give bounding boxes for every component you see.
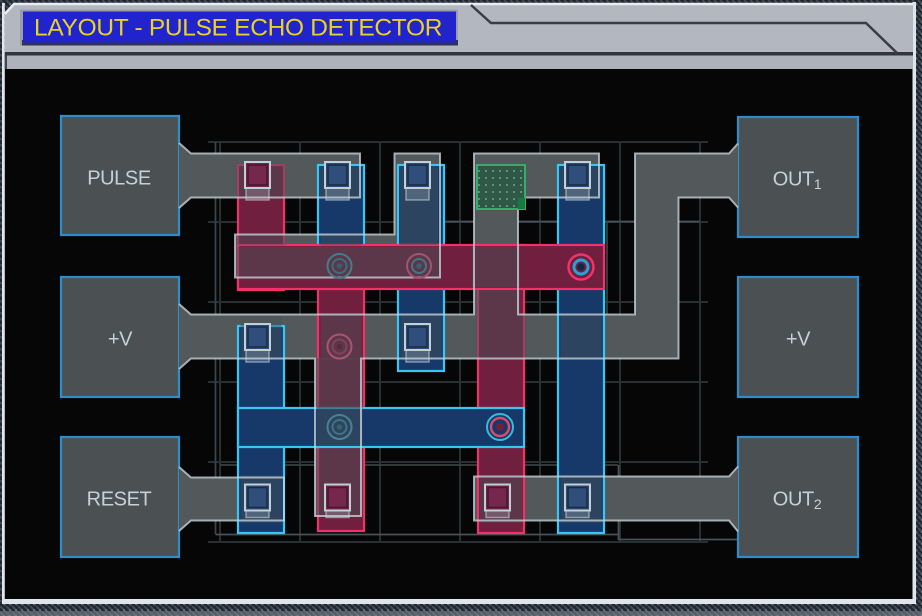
svg-text:LAYOUT - PULSE ECHO DETECTOR: LAYOUT - PULSE ECHO DETECTOR [34, 15, 442, 42]
svg-text:+V: +V [108, 329, 133, 351]
svg-text:PULSE: PULSE [87, 168, 151, 190]
svg-text:+V: +V [786, 329, 811, 351]
svg-text:RESET: RESET [87, 489, 152, 511]
